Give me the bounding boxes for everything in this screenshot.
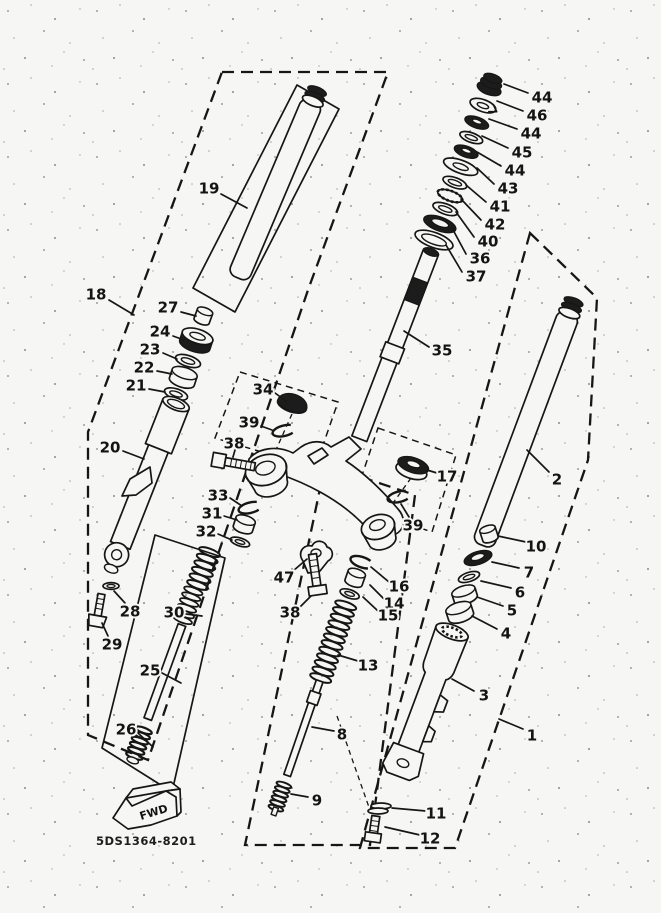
part-label-47: 47: [274, 569, 295, 587]
part-label-27: 27: [158, 299, 179, 317]
part-label-32: 32: [196, 523, 217, 541]
part-label-5: 5: [507, 602, 517, 620]
part-label-11: 11: [426, 805, 447, 823]
part-label-45: 45: [512, 144, 533, 162]
part-label-22: 22: [134, 359, 155, 377]
exploded-parts-diagram: FWD 5DS1364-8201 44464445444341424036373…: [0, 0, 661, 913]
part-label-17: 17: [437, 468, 458, 486]
part-label-16: 16: [389, 578, 410, 596]
diagram-canvas: FWD 5DS1364-8201 44464445444341424036373…: [0, 0, 661, 913]
part-label-34: 34: [253, 381, 274, 399]
part-label-1: 1: [527, 727, 537, 745]
part-label-33: 33: [208, 487, 229, 505]
part-label-44: 44: [521, 125, 542, 143]
part-label-39: 39: [403, 517, 424, 535]
part-label-13: 13: [358, 657, 379, 675]
part-label-23: 23: [140, 341, 161, 359]
diagram-code: 5DS1364-8201: [96, 834, 197, 848]
part-label-18: 18: [86, 286, 107, 304]
part-label-35: 35: [432, 342, 453, 360]
part-label-28: 28: [120, 603, 141, 621]
part-label-42: 42: [485, 216, 506, 234]
part-label-10: 10: [526, 538, 547, 556]
part-label-8: 8: [337, 726, 347, 744]
part-label-2: 2: [552, 471, 562, 489]
part-label-24: 24: [150, 323, 171, 341]
part-label-15: 15: [378, 607, 399, 625]
part-label-25: 25: [140, 662, 161, 680]
part-28-washer: [103, 583, 119, 590]
part-label-38: 38: [280, 604, 301, 622]
part-label-29: 29: [102, 636, 123, 654]
part-label-4: 4: [501, 625, 511, 643]
part-label-7: 7: [524, 564, 534, 582]
part-label-40: 40: [478, 233, 499, 251]
part-label-20: 20: [100, 439, 121, 457]
part-label-19: 19: [199, 180, 220, 198]
part-label-36: 36: [470, 250, 491, 268]
part-label-3: 3: [479, 687, 489, 705]
part-label-12: 12: [420, 830, 441, 848]
part-label-31: 31: [202, 505, 223, 523]
part-label-37: 37: [466, 268, 487, 286]
part-label-43: 43: [498, 180, 519, 198]
part-label-26: 26: [116, 721, 137, 739]
part-label-39: 39: [239, 414, 260, 432]
part-label-41: 41: [490, 198, 511, 216]
part-label-46: 46: [527, 107, 548, 125]
part-label-44: 44: [505, 162, 526, 180]
part-label-6: 6: [515, 584, 525, 602]
part-label-21: 21: [126, 377, 147, 395]
part-11-gasket: [368, 803, 391, 814]
part-label-44: 44: [532, 89, 553, 107]
part-label-38: 38: [224, 435, 245, 453]
part-label-30: 30: [164, 604, 185, 622]
part-label-9: 9: [312, 792, 322, 810]
